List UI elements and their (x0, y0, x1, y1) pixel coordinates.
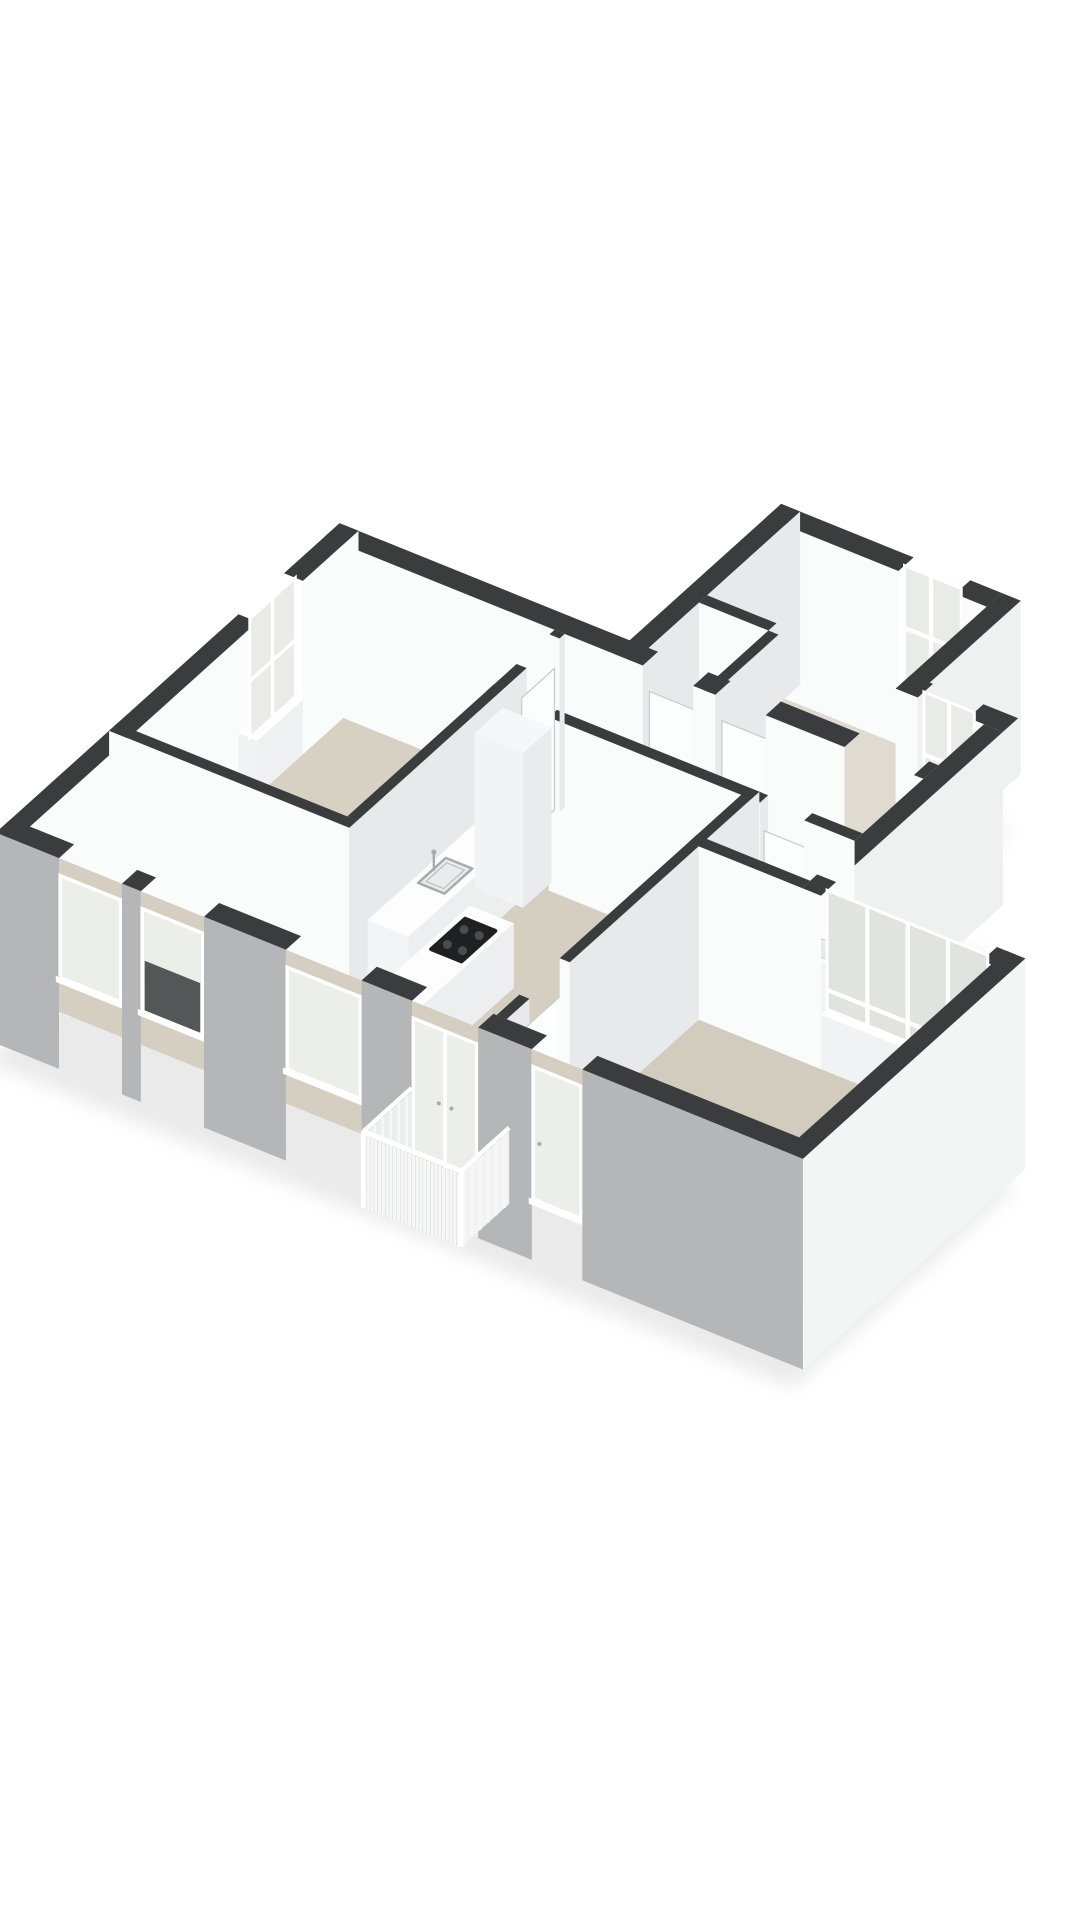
kitchen-tall-cabinet-south-face (475, 733, 524, 908)
floorplan-viewport (0, 0, 1080, 1920)
kitchen-faucet-spout (431, 850, 436, 855)
band-wall-a-south-face (802, 888, 821, 1069)
bedroom-left-south-wall-east-face (349, 821, 357, 1002)
island-cooktop-burner-1 (443, 940, 452, 949)
island-cooktop-burner-2 (458, 946, 467, 955)
south-facade-c-south-face (204, 917, 286, 1161)
bedroom-right-window-door-handle (537, 1142, 541, 1146)
island-cooktop-burner-4 (475, 931, 484, 940)
walls-and-fixtures (0, 504, 1025, 1370)
bedroom-left-east-wall-b-east-face (560, 634, 565, 812)
island-cooktop-burner-3 (460, 925, 469, 934)
balcony-french-doors-handle-1 (437, 1101, 441, 1105)
south-facade-a-south-face (0, 833, 59, 1069)
balcony-french-doors-handle-2 (449, 1106, 453, 1110)
kitchen-tall-cabinet-east-face (523, 727, 551, 908)
floorplan-3d-render (0, 0, 1080, 1920)
south-facade-b-south-face (122, 884, 141, 1102)
